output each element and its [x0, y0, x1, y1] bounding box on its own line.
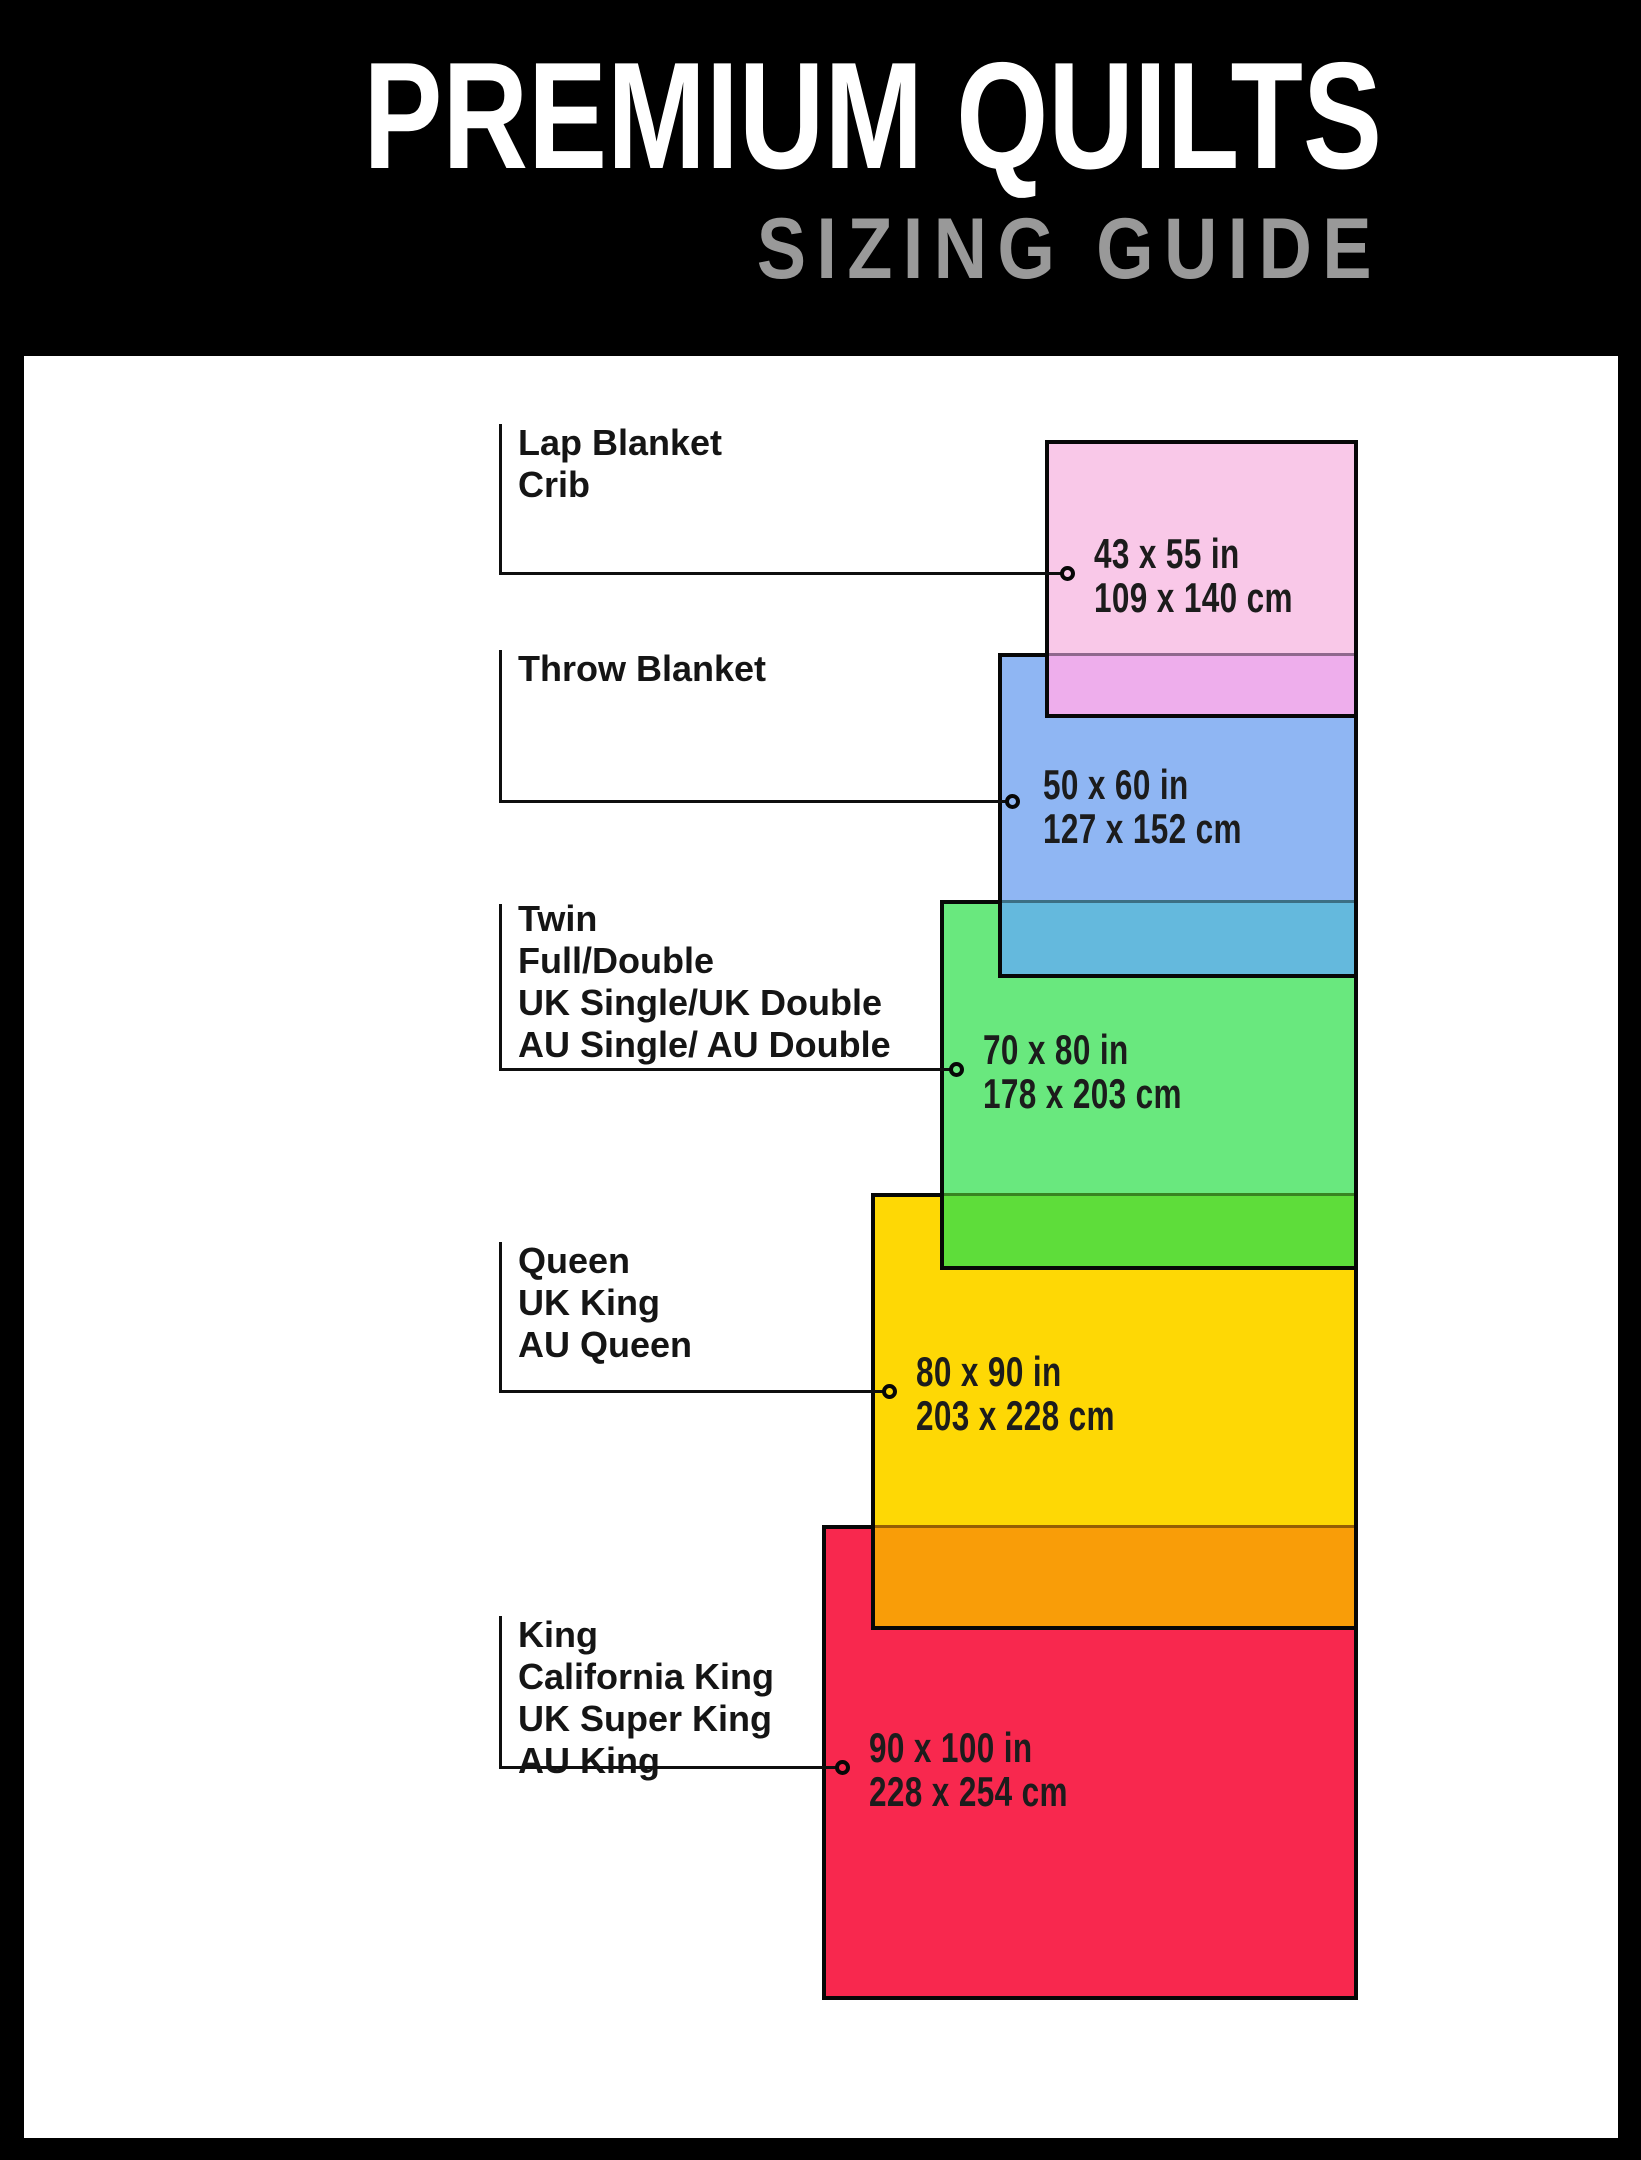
dimension-inches: 43 x 55 in	[1094, 532, 1293, 576]
size-dimensions-throw: 50 x 60 in 127 x 152 cm	[1043, 763, 1242, 851]
size-dimensions-crib: 43 x 55 in 109 x 140 cm	[1094, 532, 1293, 620]
size-name: Throw Blanket	[518, 648, 766, 690]
dimension-cm: 178 x 203 cm	[983, 1072, 1182, 1116]
size-label-throw: Throw Blanket	[518, 648, 766, 690]
label-tick-throw	[499, 650, 502, 802]
size-name: UK King	[518, 1282, 692, 1324]
size-name: Full/Double	[518, 940, 891, 982]
page-subtitle: SIZING GUIDE	[76, 206, 1382, 292]
connector-dot-throw	[1005, 794, 1020, 809]
connector-dot-twin	[949, 1062, 964, 1077]
infographic-root: PREMIUM QUILTS SIZING GUIDE Lap Blanket …	[0, 0, 1641, 2160]
dimension-inches: 70 x 80 in	[983, 1028, 1182, 1072]
label-tick-queen	[499, 1242, 502, 1392]
size-dimensions-king: 90 x 100 in 228 x 254 cm	[869, 1726, 1068, 1814]
label-tick-crib	[499, 424, 502, 574]
label-tick-twin	[499, 904, 502, 1070]
overlap-band-twin-queen	[944, 1193, 1354, 1266]
size-label-queen: Queen UK King AU Queen	[518, 1240, 692, 1366]
dimension-cm: 109 x 140 cm	[1094, 576, 1293, 620]
size-name: California King	[518, 1656, 774, 1698]
label-tick-king	[499, 1616, 502, 1768]
size-name: AU Single/ AU Double	[518, 1024, 891, 1066]
overlap-band-crib-throw	[1049, 653, 1354, 714]
size-name: Crib	[518, 464, 722, 506]
connector-line-throw	[499, 800, 1007, 803]
size-name: UK Single/UK Double	[518, 982, 891, 1024]
size-name: Lap Blanket	[518, 422, 722, 464]
overlap-band-queen-king	[875, 1525, 1354, 1626]
dimension-cm: 228 x 254 cm	[869, 1770, 1068, 1814]
connector-line-crib	[499, 572, 1062, 575]
connector-line-queen	[499, 1390, 884, 1393]
size-label-twin: Twin Full/Double UK Single/UK Double AU …	[518, 898, 891, 1066]
connector-dot-king	[835, 1760, 850, 1775]
connector-dot-queen	[882, 1384, 897, 1399]
size-name: Queen	[518, 1240, 692, 1282]
connector-dot-crib	[1060, 566, 1075, 581]
size-name: AU King	[518, 1740, 774, 1782]
page-title: PREMIUM QUILTS	[76, 40, 1382, 192]
overlap-band-throw-twin	[1002, 900, 1354, 974]
header: PREMIUM QUILTS SIZING GUIDE	[76, 40, 1382, 292]
size-label-crib: Lap Blanket Crib	[518, 422, 722, 506]
dimension-cm: 203 x 228 cm	[916, 1394, 1115, 1438]
dimension-inches: 50 x 60 in	[1043, 763, 1242, 807]
size-dimensions-queen: 80 x 90 in 203 x 228 cm	[916, 1350, 1115, 1438]
dimension-cm: 127 x 152 cm	[1043, 807, 1242, 851]
dimension-inches: 80 x 90 in	[916, 1350, 1115, 1394]
size-name: Twin	[518, 898, 891, 940]
diagram-panel: Lap Blanket Crib 43 x 55 in 109 x 140 cm…	[24, 356, 1618, 2138]
size-name: UK Super King	[518, 1698, 774, 1740]
connector-line-twin	[499, 1068, 951, 1071]
size-name: AU Queen	[518, 1324, 692, 1366]
size-label-king: King California King UK Super King AU Ki…	[518, 1614, 774, 1782]
size-name: King	[518, 1614, 774, 1656]
size-dimensions-twin: 70 x 80 in 178 x 203 cm	[983, 1028, 1182, 1116]
dimension-inches: 90 x 100 in	[869, 1726, 1068, 1770]
